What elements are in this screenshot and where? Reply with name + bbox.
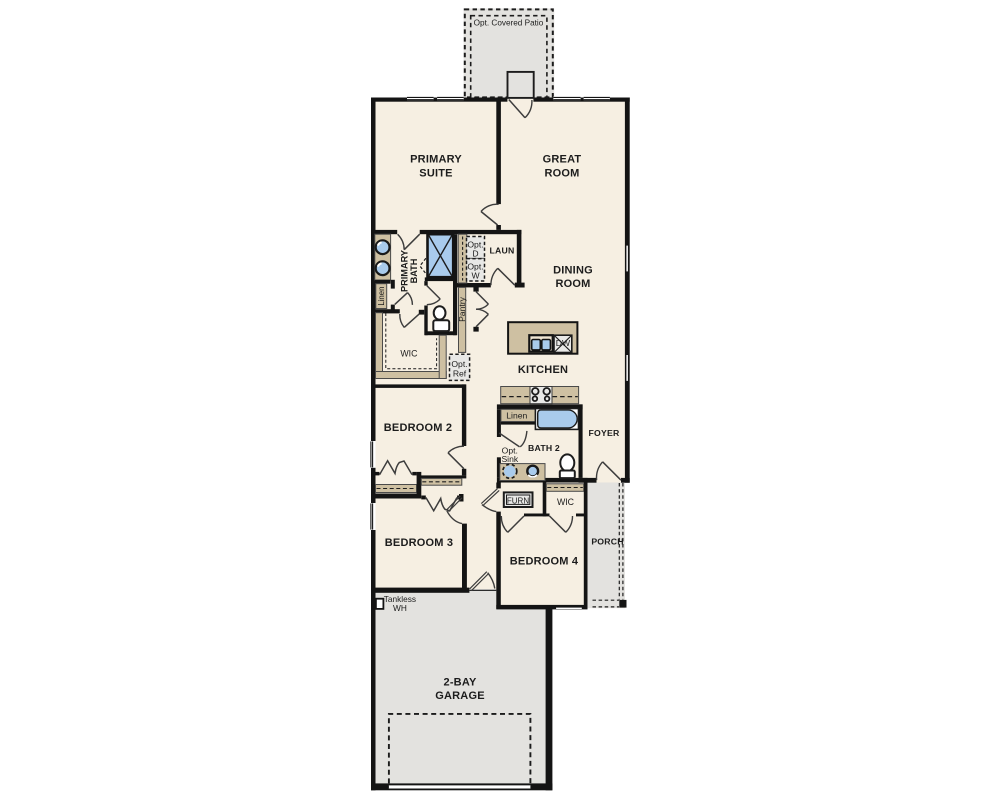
svg-text:PRIMARY: PRIMARY <box>400 250 410 292</box>
svg-text:KITCHEN: KITCHEN <box>518 364 568 376</box>
svg-text:Linen: Linen <box>377 287 386 306</box>
svg-text:BEDROOM 4: BEDROOM 4 <box>510 555 579 567</box>
svg-text:Pantry: Pantry <box>457 296 467 322</box>
svg-text:Sink: Sink <box>501 454 518 464</box>
svg-text:BEDROOM 3: BEDROOM 3 <box>385 537 453 549</box>
svg-text:GARAGE: GARAGE <box>435 690 484 702</box>
svg-text:BATH 2: BATH 2 <box>528 443 560 453</box>
svg-text:Ref: Ref <box>453 368 467 378</box>
svg-text:WH: WH <box>393 603 407 613</box>
svg-text:BEDROOM 2: BEDROOM 2 <box>384 422 452 434</box>
svg-text:FURN: FURN <box>507 497 529 506</box>
svg-text:SUITE: SUITE <box>419 168 452 180</box>
svg-text:BATH: BATH <box>409 258 419 283</box>
svg-text:PRIMARY: PRIMARY <box>410 153 462 165</box>
svg-text:DINING: DINING <box>553 264 593 276</box>
svg-text:WIC: WIC <box>400 348 418 358</box>
svg-text:ROOM: ROOM <box>544 168 579 180</box>
svg-text:ROOM: ROOM <box>555 278 590 290</box>
svg-text:W: W <box>471 270 480 280</box>
svg-text:Linen: Linen <box>506 410 527 420</box>
svg-text:D: D <box>472 248 478 258</box>
svg-text:PORCH: PORCH <box>591 537 623 547</box>
svg-text:2-BAY: 2-BAY <box>444 676 477 688</box>
svg-text:LAUN: LAUN <box>490 246 515 256</box>
svg-text:GREAT: GREAT <box>543 153 582 165</box>
svg-text:DW: DW <box>556 338 571 348</box>
svg-text:Opt. Covered Patio: Opt. Covered Patio <box>474 19 544 28</box>
svg-text:WIC: WIC <box>557 497 575 507</box>
svg-text:FOYER: FOYER <box>589 428 620 438</box>
